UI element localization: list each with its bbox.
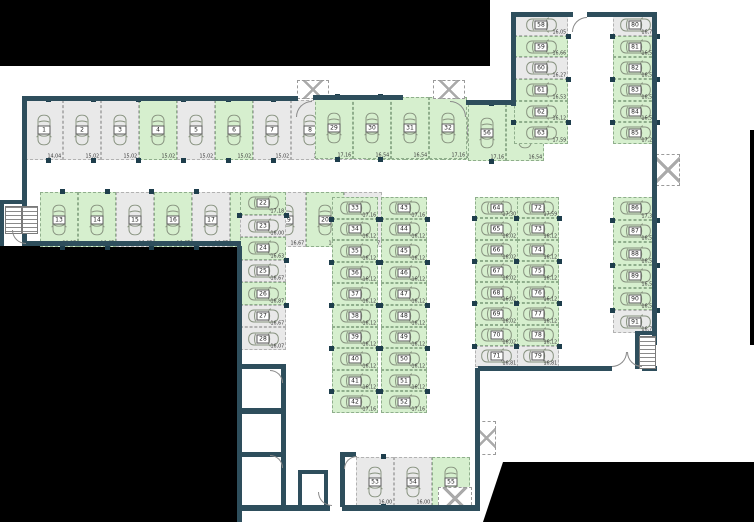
wall	[340, 452, 345, 507]
space-number: 66	[490, 246, 503, 255]
parking-space-51[interactable]: 5116,12	[381, 370, 427, 392]
space-number: 4	[152, 126, 165, 135]
pillar-column	[610, 34, 615, 39]
space-area-label: 16,87	[270, 298, 284, 304]
pillar-column	[566, 34, 571, 39]
space-number: 70	[490, 331, 503, 340]
door-arc-icon	[572, 17, 587, 32]
wall	[298, 470, 302, 507]
door-arc-icon	[612, 352, 627, 367]
pillar-column	[425, 260, 430, 265]
space-number: 64	[490, 203, 503, 212]
space-area-label: 16,12	[543, 318, 557, 324]
parking-space-25[interactable]: 2516,67	[240, 260, 286, 283]
space-number: 89	[629, 272, 642, 281]
space-area-label: 16,12	[411, 255, 425, 261]
wall	[0, 200, 4, 246]
wall	[511, 12, 573, 17]
door-arc-icon	[318, 492, 332, 506]
parking-space-76[interactable]: 7616,12	[517, 282, 559, 303]
space-number: 45	[398, 246, 411, 255]
space-number: 55	[445, 477, 458, 486]
parking-space-16[interactable]: 1616,67	[154, 192, 192, 247]
parking-space-61[interactable]: 6116,53	[514, 79, 568, 101]
parking-space-27[interactable]: 2716,67	[240, 305, 286, 328]
parking-space-1[interactable]: 114,04	[25, 100, 63, 160]
x-hatch-icon	[433, 80, 465, 99]
parking-space-26[interactable]: 2616,87	[240, 282, 286, 305]
space-area-label: 16,12	[362, 298, 376, 304]
pillar-column	[271, 158, 276, 163]
parking-space-62[interactable]: 6216,12	[514, 101, 568, 123]
space-number: 58	[535, 20, 548, 29]
space-area-label: 16,12	[411, 320, 425, 326]
parking-space-83[interactable]: 8316,53	[613, 79, 657, 101]
pillar-column	[472, 344, 477, 349]
parking-space-90[interactable]: 9016,53	[613, 288, 657, 311]
pillar-column	[284, 303, 289, 308]
space-area-label: 16,12	[543, 339, 557, 345]
parking-row-13-21: 1320,271416,671516,671616,671716,671816,…	[40, 192, 240, 247]
space-number: 78	[532, 331, 545, 340]
parking-space-53[interactable]: 5316,00	[356, 457, 394, 506]
space-area-label: 16,12	[411, 342, 425, 348]
space-area-label: 16,12	[362, 277, 376, 283]
space-number: 29	[328, 124, 341, 133]
space-number: 65	[490, 224, 503, 233]
parking-space-14[interactable]: 1416,67	[78, 192, 116, 247]
space-number: 90	[629, 295, 642, 304]
parking-col-80-85: 8016,768116,538216,538316,538416,538517,…	[613, 14, 657, 144]
space-number: 43	[398, 203, 411, 212]
pillar-column	[378, 303, 383, 308]
pillar-column	[557, 301, 562, 306]
space-area-label: 16,00	[270, 231, 284, 237]
space-number: 82	[629, 64, 642, 73]
mask-bottom-right	[480, 462, 754, 522]
space-number: 37	[349, 290, 362, 299]
pillar-column	[557, 344, 562, 349]
parking-space-88[interactable]: 8816,53	[613, 242, 657, 265]
space-number: 80	[629, 20, 642, 29]
parking-space-75[interactable]: 7516,12	[517, 261, 559, 282]
space-area-label: 16,02	[502, 275, 516, 281]
space-area-label: 16,53	[552, 94, 566, 100]
space-number: 48	[398, 311, 411, 320]
space-number: 88	[629, 249, 642, 258]
pillar-column	[226, 158, 231, 163]
space-number: 49	[398, 333, 411, 342]
space-number: 87	[629, 227, 642, 236]
space-number: 69	[490, 309, 503, 318]
space-number: 1	[38, 126, 51, 135]
pillar-column	[91, 158, 96, 163]
parking-space-45[interactable]: 4516,12	[381, 240, 427, 262]
space-number: 84	[629, 107, 642, 116]
wall	[313, 95, 403, 100]
parking-space-37[interactable]: 3716,12	[332, 283, 378, 305]
parking-space-91[interactable]: 9116,76	[613, 310, 657, 333]
parking-space-60[interactable]: 6016,27	[514, 57, 568, 79]
parking-space-46[interactable]: 4616,12	[381, 262, 427, 284]
space-number: 3	[114, 126, 127, 135]
space-area-label: 16,12	[362, 385, 376, 391]
parking-space-35[interactable]: 3516,12	[332, 240, 378, 262]
wall	[281, 369, 286, 413]
parking-space-85[interactable]: 8517,27	[613, 122, 657, 144]
parking-space-82[interactable]: 8216,53	[613, 57, 657, 79]
parking-space-38[interactable]: 3816,12	[332, 305, 378, 327]
space-area-label: 16,02	[502, 233, 516, 239]
pillar-column	[284, 258, 289, 263]
parking-space-89[interactable]: 8916,53	[613, 265, 657, 288]
space-area-label: 15,02	[199, 153, 213, 159]
space-number: 39	[349, 333, 362, 342]
parking-space-3[interactable]: 315,02	[101, 100, 139, 160]
pillar-column	[425, 217, 430, 222]
wall	[240, 364, 286, 369]
door-arc-icon	[344, 456, 357, 469]
space-number: 28	[257, 334, 270, 343]
parking-space-65[interactable]: 6516,02	[475, 218, 518, 239]
wall	[478, 366, 612, 371]
space-number: 71	[490, 352, 503, 361]
parking-col-22-28: 2217,182316,002416,632516,672616,872716,…	[240, 192, 286, 350]
space-number: 56	[481, 128, 494, 137]
space-area-label: 17,16	[411, 406, 425, 412]
space-number: 61	[535, 85, 548, 94]
space-number: 59	[535, 42, 548, 51]
pillar-column	[335, 157, 340, 162]
parking-space-41[interactable]: 4116,12	[332, 370, 378, 392]
space-area-label: 17,59	[552, 137, 566, 143]
parking-space-54[interactable]: 5416,00	[394, 457, 432, 506]
space-area-label: 16,67	[290, 240, 304, 246]
parking-space-70[interactable]: 7016,02	[475, 325, 518, 346]
space-area-label: 16,12	[362, 363, 376, 369]
pillar-column	[514, 216, 519, 221]
wall	[466, 100, 514, 105]
space-number: 15	[129, 215, 142, 224]
space-number: 54	[407, 477, 420, 486]
parking-space-34[interactable]: 3416,12	[332, 219, 378, 241]
pillar-column	[329, 217, 334, 222]
parking-space-13[interactable]: 1320,27	[40, 192, 78, 247]
parking-space-69[interactable]: 6916,02	[475, 303, 518, 324]
pillar-column	[378, 346, 383, 351]
space-area-label: 16,12	[543, 275, 557, 281]
parking-col-64-71: 6417,306516,026616,026716,026816,026916,…	[475, 197, 518, 367]
parking-space-74[interactable]: 7416,12	[517, 240, 559, 261]
space-number: 53	[369, 477, 382, 486]
space-area-label: 16,12	[362, 320, 376, 326]
space-area-label: 16,27	[552, 72, 566, 78]
space-number: 63	[535, 129, 548, 138]
pillar-column	[149, 189, 154, 194]
wall	[652, 12, 657, 345]
space-area-label: 16,12	[411, 234, 425, 240]
pillar-column	[610, 308, 615, 313]
space-area-label: 16,12	[543, 254, 557, 260]
parking-space-86[interactable]: 8617,37	[613, 197, 657, 220]
parking-space-73[interactable]: 7316,12	[517, 218, 559, 239]
parking-space-47[interactable]: 4716,12	[381, 283, 427, 305]
parking-space-2[interactable]: 215,02	[63, 100, 101, 160]
space-number: 51	[398, 376, 411, 385]
parking-space-66[interactable]: 6616,02	[475, 240, 518, 261]
pillar-column	[378, 157, 383, 162]
space-number: 50	[398, 354, 411, 363]
space-number: 91	[629, 317, 642, 326]
space-number: 23	[257, 221, 270, 230]
space-number: 40	[349, 354, 362, 363]
pillar-column	[425, 303, 430, 308]
wall	[240, 452, 284, 457]
wall	[22, 241, 241, 246]
space-number: 85	[629, 129, 642, 138]
parking-space-72[interactable]: 7217,59	[517, 197, 559, 218]
wall	[22, 96, 298, 101]
space-number: 36	[349, 268, 362, 277]
space-number: 25	[257, 267, 270, 276]
space-area-label: 16,05	[552, 29, 566, 35]
parking-space-67[interactable]: 6716,02	[475, 261, 518, 282]
space-number: 67	[490, 267, 503, 276]
pillar-column	[514, 259, 519, 264]
parking-col-86-91: 8617,378716,538816,538916,539016,539116,…	[613, 197, 657, 333]
pillar-column	[557, 259, 562, 264]
parking-space-22[interactable]: 2217,18	[240, 192, 286, 215]
parking-space-43[interactable]: 4317,16	[381, 197, 427, 219]
space-number: 6	[228, 126, 241, 135]
space-area-label: 17,59	[543, 212, 557, 218]
space-number: 32	[442, 124, 455, 133]
parking-space-52[interactable]: 5217,16	[381, 391, 427, 413]
pillar-column	[511, 120, 516, 125]
wall	[240, 408, 286, 414]
pillar-column	[378, 217, 383, 222]
floor-plan: 114,04215,02315,02415,02515,02615,02715,…	[0, 0, 754, 522]
mask-right-edge	[750, 130, 754, 345]
pillar-column	[237, 213, 242, 218]
parking-space-24[interactable]: 2416,63	[240, 237, 286, 260]
pillar-column	[566, 120, 571, 125]
pillar-column	[610, 263, 615, 268]
pillar-column	[329, 346, 334, 351]
space-number: 16	[167, 215, 180, 224]
mask-bottom-left	[0, 246, 238, 522]
wall	[281, 414, 286, 506]
wall	[587, 12, 657, 17]
parking-row-1-12: 114,04215,02315,02415,02515,02615,02715,…	[25, 100, 296, 160]
parking-space-15[interactable]: 1516,67	[116, 192, 154, 247]
space-number: 73	[532, 224, 545, 233]
wall	[342, 505, 480, 511]
space-area-label: 16,07	[270, 343, 284, 349]
pillar-column	[329, 389, 334, 394]
parking-row-56-57: 5617,165716,54	[468, 104, 514, 161]
pillar-column	[329, 303, 334, 308]
parking-space-63[interactable]: 6317,59	[514, 122, 568, 144]
pillar-column	[472, 216, 477, 221]
space-area-label: 16,54	[528, 154, 542, 160]
space-number: 83	[629, 85, 642, 94]
pillar-column	[381, 454, 386, 459]
space-area-label: 16,67	[270, 276, 284, 282]
space-area-label: 15,02	[161, 153, 175, 159]
space-number: 44	[398, 225, 411, 234]
space-number: 77	[532, 309, 545, 318]
space-area-label: 17,16	[362, 212, 376, 218]
pillar-column	[472, 259, 477, 264]
parking-space-6[interactable]: 615,02	[215, 100, 253, 160]
space-area-label: 16,12	[411, 363, 425, 369]
space-number: 68	[490, 288, 503, 297]
pillar-column	[194, 189, 199, 194]
space-area-label: 16,02	[502, 318, 516, 324]
parking-space-29[interactable]: 2917,16	[315, 97, 353, 159]
parking-space-49[interactable]: 4916,12	[381, 327, 427, 349]
parking-space-36[interactable]: 3616,12	[332, 262, 378, 284]
pillar-column	[329, 260, 334, 265]
space-number: 26	[257, 289, 270, 298]
parking-space-31[interactable]: 3116,54	[391, 97, 429, 159]
pillar-column	[514, 301, 519, 306]
space-number: 31	[404, 124, 417, 133]
space-number: 22	[257, 199, 270, 208]
pillar-column	[60, 189, 65, 194]
space-number: 14	[91, 215, 104, 224]
parking-space-58[interactable]: 5816,05	[514, 14, 568, 36]
parking-space-28[interactable]: 2816,07	[240, 327, 286, 350]
space-area-label: 15,02	[237, 153, 251, 159]
space-number: 60	[535, 64, 548, 73]
parking-space-4[interactable]: 415,02	[139, 100, 177, 160]
parking-space-59[interactable]: 5916,66	[514, 36, 568, 58]
pillar-column	[610, 77, 615, 82]
space-area-label: 16,12	[543, 297, 557, 303]
parking-space-84[interactable]: 8416,53	[613, 101, 657, 123]
parking-space-50[interactable]: 5016,12	[381, 348, 427, 370]
pillar-column	[610, 120, 615, 125]
parking-space-87[interactable]: 8716,53	[613, 220, 657, 243]
space-area-label: 17,16	[411, 212, 425, 218]
parking-space-71[interactable]: 7116,81	[475, 346, 518, 367]
wall	[511, 14, 516, 106]
wall	[237, 246, 242, 522]
wall	[240, 505, 330, 511]
space-number: 52	[398, 398, 411, 407]
space-number: 13	[53, 215, 66, 224]
mask-top-left	[0, 0, 490, 66]
pillar-column	[46, 158, 51, 163]
parking-space-7[interactable]: 715,02	[253, 100, 291, 160]
parking-col-58-63: 5816,055916,666016,276116,536216,126317,…	[514, 14, 568, 144]
space-number: 35	[349, 246, 362, 255]
space-area-label: 16,66	[552, 51, 566, 57]
parking-space-79[interactable]: 7916,81	[517, 346, 559, 367]
parking-space-17[interactable]: 1716,67	[192, 192, 230, 247]
space-area-label: 17,18	[270, 208, 284, 214]
pillar-column	[557, 216, 562, 221]
pillar-column	[284, 213, 289, 218]
wall	[635, 331, 657, 335]
space-number: 33	[349, 203, 362, 212]
space-area-label: 16,54	[413, 152, 427, 158]
parking-space-30[interactable]: 3016,54	[353, 97, 391, 159]
space-number: 81	[629, 42, 642, 51]
parking-space-23[interactable]: 2316,00	[240, 215, 286, 238]
parking-space-5[interactable]: 515,02	[177, 100, 215, 160]
space-number: 62	[535, 107, 548, 116]
parking-col-33-42: 3317,163416,123516,123616,123716,123816,…	[332, 197, 378, 413]
parking-space-77[interactable]: 7716,12	[517, 303, 559, 324]
space-number: 5	[190, 126, 203, 135]
parking-space-48[interactable]: 4816,12	[381, 305, 427, 327]
parking-col-72-79: 7217,597316,127416,127516,127616,127716,…	[517, 197, 559, 367]
pillar-column	[472, 301, 477, 306]
space-area-label: 17,16	[362, 406, 376, 412]
pillar-column	[425, 389, 430, 394]
parking-space-81[interactable]: 8116,53	[613, 36, 657, 58]
parking-space-44[interactable]: 4416,12	[381, 219, 427, 241]
parking-space-56[interactable]: 5617,16	[468, 104, 506, 161]
space-number: 24	[257, 244, 270, 253]
door-arc-icon	[12, 230, 26, 244]
space-number: 7	[266, 126, 279, 135]
space-number: 27	[257, 312, 270, 321]
parking-space-68[interactable]: 6816,02	[475, 282, 518, 303]
pillar-column	[425, 346, 430, 351]
wall	[475, 368, 480, 508]
parking-row-29-32: 2917,163016,543116,543217,16	[315, 97, 402, 159]
parking-space-80[interactable]: 8016,76	[613, 14, 657, 36]
parking-space-40[interactable]: 4016,12	[332, 348, 378, 370]
pillar-column	[136, 158, 141, 163]
space-area-label: 16,12	[362, 342, 376, 348]
pillar-column	[514, 344, 519, 349]
parking-space-33[interactable]: 3317,16	[332, 197, 378, 219]
space-area-label: 16,12	[543, 233, 557, 239]
space-area-label: 16,12	[411, 298, 425, 304]
parking-space-39[interactable]: 3916,12	[332, 327, 378, 349]
space-number: 34	[349, 225, 362, 234]
parking-col-43-52: 4317,164416,124516,124616,124716,124816,…	[381, 197, 427, 413]
space-number: 47	[398, 290, 411, 299]
parking-space-78[interactable]: 7816,12	[517, 325, 559, 346]
space-area-label: 15,02	[275, 153, 289, 159]
parking-row-53-55: 5316,005416,005517,00	[356, 457, 436, 506]
pillar-column	[378, 389, 383, 394]
pillar-column	[181, 158, 186, 163]
space-number: 42	[349, 398, 362, 407]
pillar-column	[489, 159, 494, 164]
space-number: 17	[205, 215, 218, 224]
space-area-label: 16,12	[552, 116, 566, 122]
pillar-column	[566, 77, 571, 82]
space-area-label: 16,12	[362, 234, 376, 240]
space-number: 86	[629, 204, 642, 213]
space-number: 41	[349, 376, 362, 385]
parking-space-64[interactable]: 6417,30	[475, 197, 518, 218]
space-area-label: 16,67	[270, 321, 284, 327]
door-arc-icon	[627, 352, 642, 367]
space-area-label: 16,63	[270, 253, 284, 259]
space-number: 2	[76, 126, 89, 135]
parking-space-42[interactable]: 4217,16	[332, 391, 378, 413]
space-area-label: 16,12	[411, 277, 425, 283]
space-number: 38	[349, 311, 362, 320]
